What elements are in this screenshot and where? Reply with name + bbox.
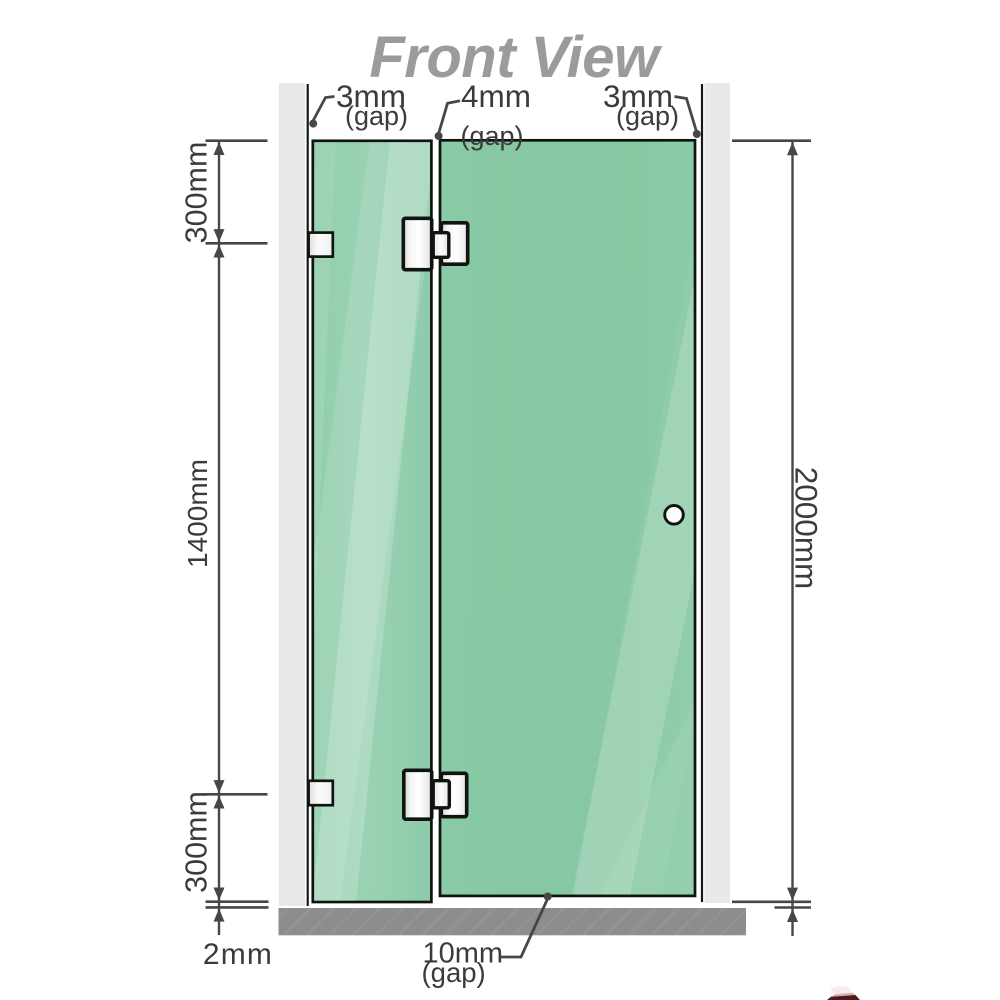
svg-text:4mm: 4mm bbox=[461, 78, 531, 114]
svg-text:300mm: 300mm bbox=[180, 142, 214, 244]
svg-text:(gap): (gap) bbox=[460, 121, 523, 151]
svg-text:1400mm: 1400mm bbox=[182, 459, 213, 568]
svg-text:(gap): (gap) bbox=[422, 957, 486, 988]
svg-text:2000mm: 2000mm bbox=[789, 467, 825, 590]
svg-text:300mm: 300mm bbox=[180, 791, 214, 893]
svg-text:(gap): (gap) bbox=[345, 101, 408, 131]
svg-text:2mm: 2mm bbox=[203, 938, 273, 971]
svg-text:(gap): (gap) bbox=[616, 101, 679, 131]
